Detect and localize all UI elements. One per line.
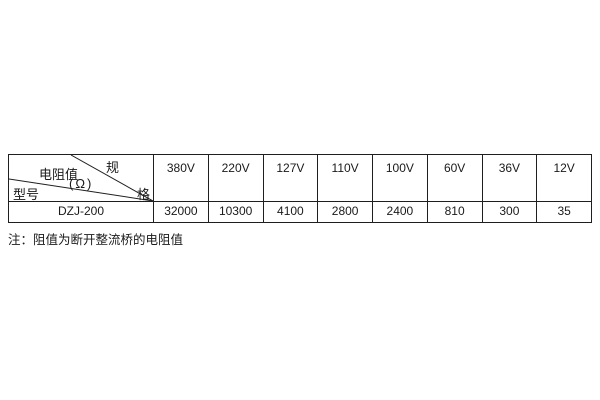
model-label: 型号 bbox=[13, 184, 39, 201]
resistance-value-100v: 2400 bbox=[372, 202, 427, 222]
model-cell: DZJ-200 bbox=[9, 202, 153, 222]
spec-table: 规 格 电阻值 (Ω) 型号 380V220V127V110V100V60V36… bbox=[8, 154, 592, 223]
resistance-value-127v: 4100 bbox=[263, 202, 318, 222]
resistance-unit: (Ω) bbox=[69, 176, 93, 191]
diagonal-header-cell: 规 格 电阻值 (Ω) 型号 bbox=[9, 155, 153, 201]
resistance-value-220v: 10300 bbox=[208, 202, 263, 222]
resistance-value-110v: 2800 bbox=[317, 202, 372, 222]
voltage-header-12v: 12V bbox=[536, 155, 591, 201]
table-data-row: DZJ-200 320001030041002800240081030035 bbox=[9, 202, 591, 222]
voltage-header-380v: 380V bbox=[153, 155, 208, 201]
spec-label-bottom: 格 bbox=[137, 184, 150, 201]
voltage-header-100v: 100V bbox=[372, 155, 427, 201]
spec-label-top: 规 bbox=[106, 157, 119, 176]
resistance-value-380v: 32000 bbox=[153, 202, 208, 222]
voltage-header-220v: 220V bbox=[208, 155, 263, 201]
table-header-row: 规 格 电阻值 (Ω) 型号 380V220V127V110V100V60V36… bbox=[9, 155, 591, 202]
note-text: 注：阻值为断开整流桥的电阻值 bbox=[8, 229, 183, 248]
page: 规 格 电阻值 (Ω) 型号 380V220V127V110V100V60V36… bbox=[0, 0, 600, 400]
resistance-value-36v: 300 bbox=[482, 202, 537, 222]
voltage-header-110v: 110V bbox=[317, 155, 372, 201]
voltage-header-36v: 36V bbox=[482, 155, 537, 201]
resistance-value-12v: 35 bbox=[536, 202, 591, 222]
voltage-header-127v: 127V bbox=[263, 155, 318, 201]
voltage-header-60v: 60V bbox=[427, 155, 482, 201]
resistance-value-60v: 810 bbox=[427, 202, 482, 222]
